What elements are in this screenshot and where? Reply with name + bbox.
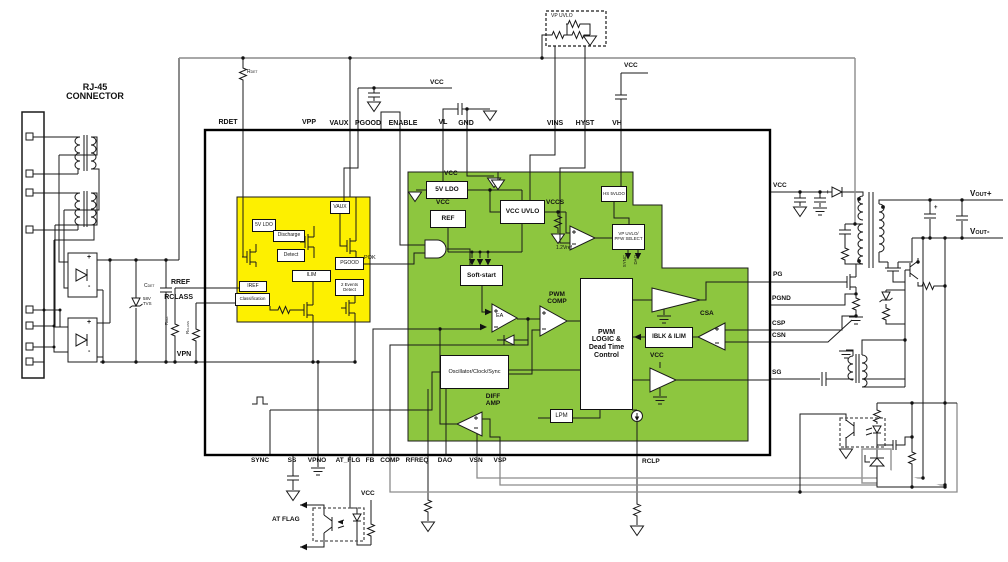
block-iref: IREF bbox=[239, 281, 267, 292]
pin-pgood: PGOOD bbox=[354, 120, 382, 127]
net-vcc-top: VCC bbox=[430, 80, 444, 87]
block-detect: Detect bbox=[277, 249, 305, 262]
pin-vaux: VAUX bbox=[327, 120, 351, 127]
rj45-connector-symbol bbox=[22, 112, 44, 378]
primary-fet-sense bbox=[770, 264, 863, 342]
block-vp-uvlo-pfw-select: VP UVLO/ PFW SELECT bbox=[612, 224, 645, 250]
vref-label: 1.2Vref bbox=[556, 246, 572, 251]
vout-plus-label: VOUT+ bbox=[970, 190, 992, 199]
net-vccs: VCCS bbox=[546, 200, 564, 207]
pin-vsn: VSN bbox=[464, 458, 488, 465]
pin-vpno: VPNO bbox=[303, 458, 331, 465]
block-discharge: Discharge bbox=[273, 230, 305, 242]
block-vcc-uvlo: VCC UVLO bbox=[500, 200, 545, 224]
tvs-diode bbox=[130, 260, 143, 362]
block-ref: REF bbox=[430, 210, 466, 228]
at-flag-circuit bbox=[300, 455, 375, 550]
net-at-flag: AT FLAG bbox=[272, 517, 300, 524]
dao-arrow-label: DAO bbox=[634, 255, 639, 265]
rfreq-resistor bbox=[422, 455, 435, 532]
net-rclass: RCLASS bbox=[145, 294, 193, 301]
pin-enable: ENABLE bbox=[386, 120, 420, 127]
vp-uvlo-divider bbox=[542, 11, 606, 130]
schematic-page: RJ-45CONNECTOR RDET CDET 58VTVS RREF RCL… bbox=[0, 0, 1008, 562]
rref-resistor-label: RREF bbox=[165, 316, 170, 325]
bridge-rectifiers bbox=[68, 253, 97, 362]
and-gate bbox=[425, 240, 446, 258]
vpn-internal bbox=[205, 320, 355, 455]
ethernet-transformers bbox=[75, 135, 96, 227]
vcc-ldo-label: VCC bbox=[444, 171, 458, 178]
block-pwm-logic: PWM LOGIC & Dead Time Control bbox=[580, 278, 633, 410]
block-2events: 2 Events Detect bbox=[335, 279, 364, 296]
block-vaux: VAUX bbox=[330, 201, 350, 214]
pin-vins: VINS bbox=[542, 120, 568, 127]
diff-amp-label: DIFF AMP bbox=[478, 394, 508, 408]
pin-vcc: VCC bbox=[773, 183, 787, 190]
bridge2-plus: + bbox=[87, 319, 91, 326]
bridge1-plus: + bbox=[87, 254, 91, 261]
pin-sg: SG bbox=[772, 370, 781, 377]
block-iblk-ilim: IBLK & ILIM bbox=[645, 327, 693, 348]
block-ilim: ILIM bbox=[292, 270, 331, 282]
net-vpn: VPN bbox=[172, 351, 196, 358]
pin-csn: CSN bbox=[772, 333, 786, 340]
rdet-resistor-label: RDET bbox=[247, 70, 257, 75]
pin-comp: COMP bbox=[377, 458, 403, 465]
rclp-resistor bbox=[631, 455, 644, 536]
cap-plus-vcc: + bbox=[826, 190, 830, 196]
ea-label: EA bbox=[496, 314, 503, 320]
flyback-transformer bbox=[839, 192, 884, 268]
cdet-capacitor bbox=[160, 260, 172, 362]
vcc-sg-label: VCC bbox=[650, 353, 664, 360]
vcc-supply bbox=[770, 187, 863, 217]
pin-ss: SS bbox=[282, 458, 302, 465]
pin-rfreq: RFREQ bbox=[402, 458, 432, 465]
pin-vh: VH bbox=[608, 120, 626, 127]
pin-fb: FB bbox=[362, 458, 378, 465]
output-rectifier bbox=[879, 200, 1003, 380]
rj45-title: RJ-45CONNECTOR bbox=[40, 83, 150, 102]
pin-hyst: HYST bbox=[571, 120, 599, 127]
pin-gnd: GND bbox=[454, 120, 478, 127]
block-oscillator: Oscillator/Clock/Sync bbox=[440, 355, 509, 389]
pin-rclp: RCLP bbox=[642, 459, 660, 466]
vcc-ref-label: VCC bbox=[436, 200, 450, 207]
vout-minus-label: VOUT- bbox=[970, 228, 990, 237]
block-classification: Classification bbox=[235, 293, 270, 306]
vp-uvlo-box-label: VP UVLO bbox=[551, 14, 573, 19]
pin-csp: CSP bbox=[772, 321, 785, 328]
pin-vsp: VSP bbox=[489, 458, 511, 465]
csa-label: CSA bbox=[700, 311, 714, 318]
pin-pgnd: PGND bbox=[772, 296, 791, 303]
sg-gate-transformer bbox=[770, 340, 905, 387]
bridge2-minus: - bbox=[88, 348, 90, 355]
pin-dao: DAO bbox=[434, 458, 456, 465]
net-vcc-atflag: VCC bbox=[361, 491, 375, 498]
pin-vl: VL bbox=[436, 119, 450, 126]
bridge1-minus: - bbox=[88, 283, 90, 290]
block-hs-5vldo: HS 5VLDO bbox=[601, 186, 627, 202]
pin-rdet: RDET bbox=[214, 119, 242, 126]
block-5vldo-dcdc: 5V LDO bbox=[426, 181, 468, 199]
block-softstart: Soft-start bbox=[460, 265, 503, 286]
sync-arrow-label: SYNC bbox=[623, 255, 628, 267]
pwm-comp-label: PWM COMP bbox=[541, 292, 573, 306]
cap-plus-out: + bbox=[934, 205, 938, 211]
pin-sync: SYNC bbox=[246, 458, 274, 465]
net-rref: RREF bbox=[150, 279, 190, 286]
net-pok: POK bbox=[364, 256, 376, 262]
input-rails bbox=[97, 58, 205, 362]
pin-pg: PG bbox=[773, 272, 782, 279]
block-pgood: PGOOD bbox=[335, 257, 364, 270]
rclass-resistor-label: RCLASS bbox=[186, 321, 191, 334]
output-feedback bbox=[800, 238, 957, 492]
pin-vpp: VPP bbox=[298, 119, 320, 126]
net-vcc-vh: VCC bbox=[624, 63, 638, 70]
block-lpm: LPM bbox=[550, 409, 573, 423]
pin-at-flg: AT_FLG bbox=[333, 458, 363, 465]
